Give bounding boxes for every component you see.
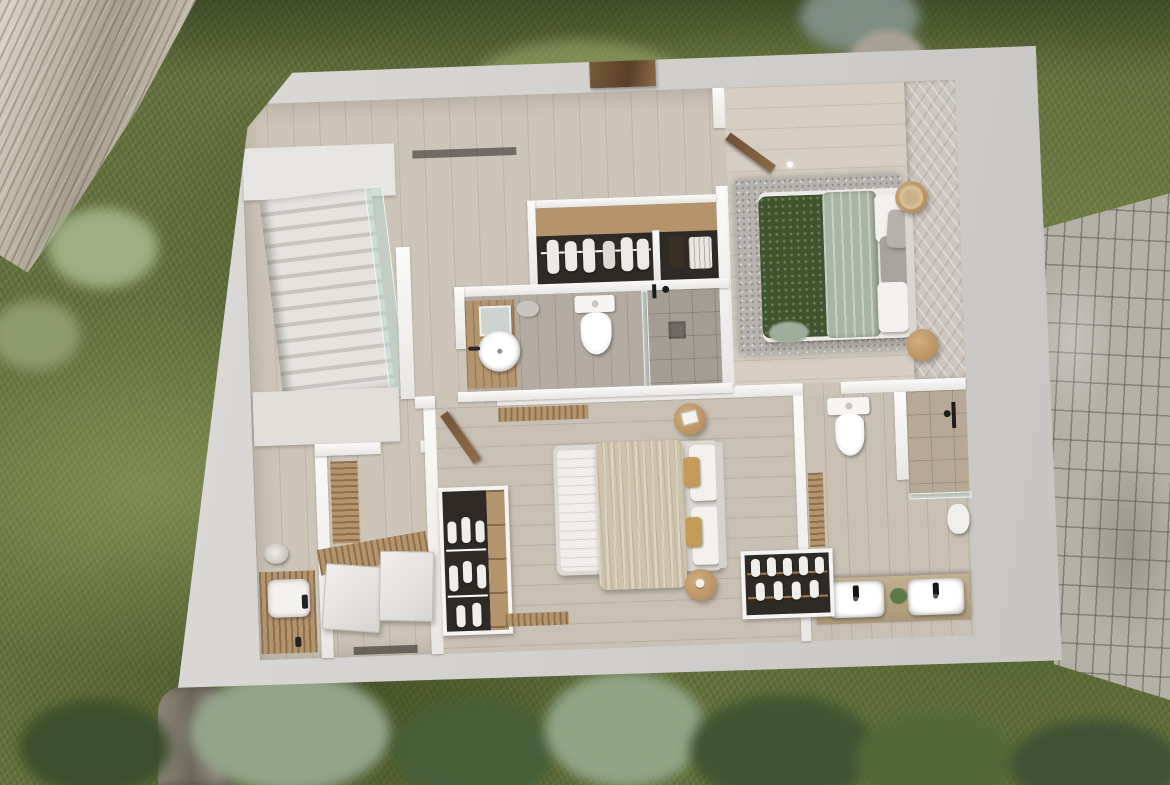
tap-lower: [295, 637, 301, 647]
folded-clothes: [472, 603, 482, 627]
shower2-floor: [906, 390, 970, 497]
pillow-white: [877, 281, 909, 332]
hanging-clothes: [546, 240, 559, 274]
vase-dark: [668, 235, 684, 268]
bush-sage-by-rock: [48, 208, 158, 288]
appliance-1: [322, 563, 384, 633]
linen-closet: [740, 548, 834, 619]
doormat: [505, 612, 568, 627]
radiator-slat-vertical: [330, 461, 360, 544]
stair-landing: [253, 387, 401, 446]
wall-main-horizontal-a: [415, 396, 435, 409]
wall-vent-dark: [354, 645, 418, 655]
hanging-clothes: [620, 237, 633, 271]
wardrobe-drawers: [486, 490, 509, 631]
floor-plan-render-scene: [0, 0, 1170, 785]
basin-right-drain: [933, 594, 938, 599]
radiator-bath2: [808, 473, 826, 547]
towel-hanging: [792, 581, 802, 599]
tree-sage-1: [190, 672, 390, 785]
shower-drain: [668, 321, 686, 339]
shower2-fixture-bar: [951, 402, 956, 428]
room-bathroom-1: [454, 278, 733, 403]
hat-on-floor: [264, 543, 289, 564]
stairwell-void-edge: [412, 147, 516, 159]
towel-hanging: [783, 558, 793, 576]
folded-clothes: [461, 517, 471, 543]
sink-tap: [468, 346, 480, 350]
basin-tap: [302, 595, 308, 609]
accent-pillow-tan: [685, 517, 702, 548]
folded-clothes: [463, 561, 473, 583]
appliance-2: [379, 551, 434, 622]
wardrobe: [438, 486, 513, 636]
room-utility: [327, 452, 432, 657]
towel-hanging: [767, 557, 777, 576]
room-main-bedroom: [724, 80, 965, 386]
towel-on-floor: [947, 503, 970, 534]
folded-clothes: [477, 564, 487, 588]
green-knit-throw: [758, 194, 833, 338]
folded-clothes: [456, 605, 466, 627]
hanging-clothes: [636, 238, 649, 269]
accent-pillow-tan: [683, 457, 700, 488]
towel-hanging: [815, 557, 825, 574]
sage-duvet: [822, 191, 881, 339]
hanging-clothes: [582, 238, 595, 272]
towel-hook-items: [517, 300, 540, 317]
tree-dark-1: [20, 700, 170, 785]
beige-duvet: [595, 439, 688, 590]
hanging-clothes: [602, 241, 615, 269]
towel-hanging: [809, 580, 819, 598]
building-cut-walls: [170, 40, 1070, 695]
folded-clothes: [447, 521, 457, 543]
interior-floor: [241, 80, 975, 661]
tree-sage-2: [545, 672, 705, 785]
storage-basket: [688, 236, 712, 269]
towel-hanging: [773, 581, 783, 600]
towel-hanging: [756, 583, 766, 601]
folded-clothes: [449, 565, 459, 591]
shower-fixture: [652, 284, 656, 298]
towel-hanging: [751, 559, 761, 577]
towel-hanging: [799, 556, 809, 575]
hanging-clothes: [564, 241, 577, 271]
folded-clothes: [475, 520, 485, 542]
